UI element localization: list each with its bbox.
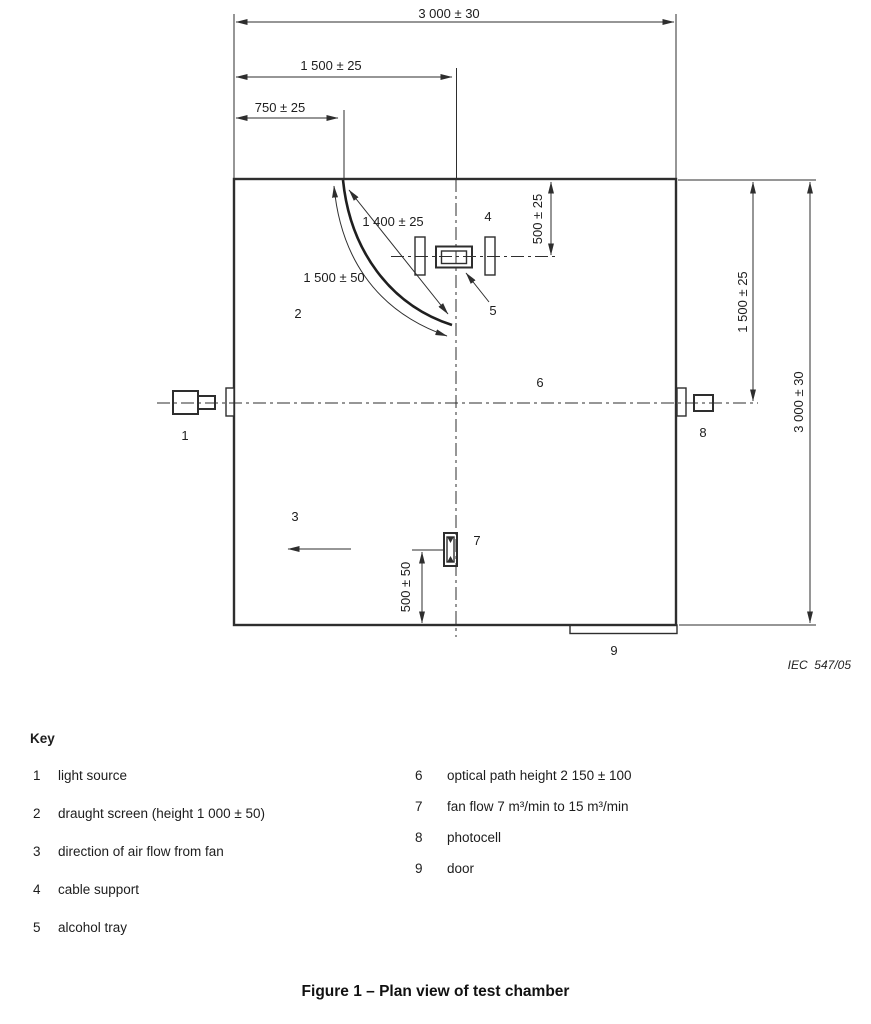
part-label-draught-screen: 2 (294, 306, 301, 321)
key-item-1: 1 light source (33, 768, 265, 784)
test-chamber-drawing: 3 000 ± 30 1 500 ± 25 750 ± 25 1 400 ± 2… (0, 0, 871, 712)
key-item-label: light source (58, 768, 127, 784)
alcohol-tray-inner (442, 251, 467, 264)
dim-screen-chord-label: 1 400 ± 25 (362, 214, 423, 229)
part-label-fan: 7 (473, 533, 480, 548)
key-item-3: 3 direction of air flow from fan (33, 844, 265, 860)
light-source (173, 388, 234, 416)
key-item-label: alcohol tray (58, 920, 127, 936)
part-label-optical-path: 6 (536, 375, 543, 390)
key-item-number: 3 (33, 844, 58, 860)
dim-width-total-label: 3 000 ± 30 (418, 6, 479, 21)
key-item-number: 5 (33, 920, 58, 936)
key-item-label: door (447, 861, 474, 877)
plan-view-diagram: 3 000 ± 30 1 500 ± 25 750 ± 25 1 400 ± 2… (0, 0, 871, 712)
dim-height-half-label: 1 500 ± 25 (735, 271, 750, 332)
key-item-9: 9 door (415, 861, 632, 877)
dim-cable-offset-label: 500 ± 25 (530, 194, 545, 245)
key-item-number: 7 (415, 799, 447, 815)
key-item-number: 6 (415, 768, 447, 784)
key-item-label: photocell (447, 830, 501, 846)
key-item-label: fan flow 7 m³/min to 15 m³/min (447, 799, 629, 815)
dim-width-total: 3 000 ± 30 (234, 6, 676, 178)
key-item-label: draught screen (height 1 000 ± 50) (58, 806, 265, 822)
key-item-number: 8 (415, 830, 447, 846)
fan (444, 533, 457, 566)
part-label-cable-support: 4 (484, 209, 491, 224)
key-item-6: 6 optical path height 2 150 ± 100 (415, 768, 632, 784)
dim-fan-offset-label: 500 ± 50 (398, 562, 413, 613)
part-label-light-source: 1 (181, 428, 188, 443)
dim-width-quarter: 750 ± 25 (236, 100, 344, 178)
key-item-label: cable support (58, 882, 139, 898)
dim-height-total-label: 3 000 ± 30 (791, 371, 806, 432)
key-title: Key (30, 731, 55, 746)
dim-screen-length-label: 1 500 ± 50 (303, 270, 364, 285)
key-item-label: direction of air flow from fan (58, 844, 224, 860)
key-column-right: 6 optical path height 2 150 ± 100 7 fan … (415, 768, 632, 892)
door-outline (570, 625, 677, 634)
part-label-photocell: 8 (699, 425, 706, 440)
part-label-door: 9 (610, 643, 617, 658)
key-item-2: 2 draught screen (height 1 000 ± 50) (33, 806, 265, 822)
iec-reference: IEC 547/05 (788, 658, 852, 672)
key-item-8: 8 photocell (415, 830, 632, 846)
key-item-number: 9 (415, 861, 447, 877)
photocell (677, 388, 713, 416)
light-source-window (226, 388, 234, 416)
key-item-number: 1 (33, 768, 58, 784)
key-item-5: 5 alcohol tray (33, 920, 265, 936)
key-item-number: 4 (33, 882, 58, 898)
key-item-number: 2 (33, 806, 58, 822)
dim-height-half: 1 500 ± 25 (735, 182, 753, 401)
dim-width-quarter-label: 750 ± 25 (255, 100, 306, 115)
key-column-left: 1 light source 2 draught screen (height … (33, 768, 265, 958)
figure-caption: Figure 1 – Plan view of test chamber (0, 983, 871, 1001)
key-item-label: optical path height 2 150 ± 100 (447, 768, 632, 784)
key-item-4: 4 cable support (33, 882, 265, 898)
part-label-alcohol-tray: 5 (489, 303, 496, 318)
dim-width-half-label: 1 500 ± 25 (300, 58, 361, 73)
part-label-airflow: 3 (291, 509, 298, 524)
photocell-window (677, 388, 686, 416)
key-item-7: 7 fan flow 7 m³/min to 15 m³/min (415, 799, 632, 815)
